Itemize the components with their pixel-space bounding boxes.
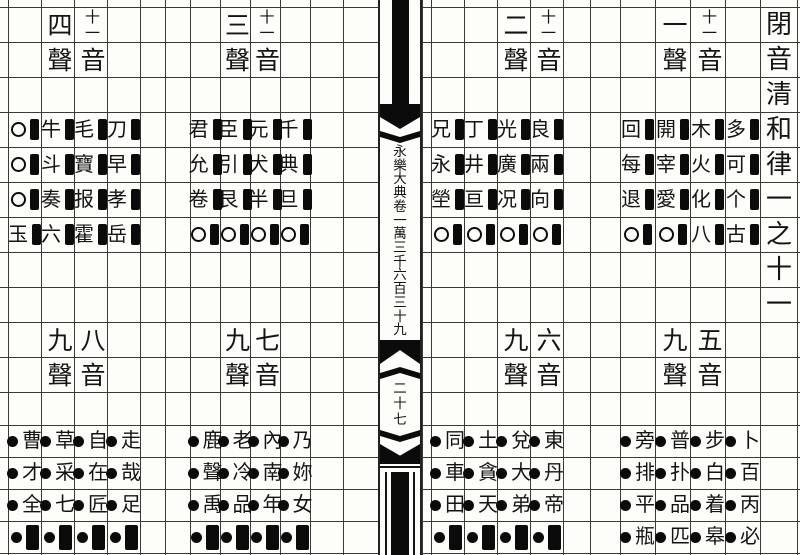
tone-bar-icon — [303, 154, 312, 175]
tone-bar-icon — [98, 154, 107, 175]
cell-character: 排 — [635, 463, 655, 483]
tone-bar-icon — [678, 224, 687, 245]
category-label: 五 — [690, 322, 725, 357]
filled-dot-icon — [725, 436, 736, 447]
cell-character: 才 — [22, 463, 42, 483]
tone-bar-icon — [680, 119, 689, 140]
cell-character: 開 — [656, 120, 676, 140]
filled-dot-icon — [463, 500, 474, 511]
cell-character: 六 — [41, 225, 61, 245]
tone-bar-icon — [131, 154, 140, 175]
tone-label: 三 — [220, 7, 250, 42]
grid-cell: 土 — [464, 425, 497, 457]
grid-cell: 丁 — [464, 112, 497, 147]
spine-volume-character: 永 — [393, 145, 407, 159]
cell-character: 步 — [705, 431, 725, 451]
grid-cell: 犬 — [250, 147, 280, 182]
tone-bar-icon — [715, 119, 724, 140]
grid-cell: 回 — [620, 112, 655, 147]
grid-vline — [422, 0, 423, 555]
grid-cell — [8, 112, 41, 147]
grid-vline — [590, 0, 591, 555]
filled-dot-icon — [40, 468, 51, 479]
grid-cell — [8, 147, 41, 182]
tone-label: 聲 — [655, 357, 690, 392]
filled-dot-icon — [248, 500, 259, 511]
tone-bar-icon — [270, 224, 279, 245]
cell-character: 永 — [431, 155, 451, 175]
empty-circle-icon — [434, 227, 449, 242]
cell-character: 品 — [670, 495, 690, 515]
tone-bar-icon — [455, 154, 464, 175]
tone-bar-icon — [98, 224, 107, 245]
cell-character: 曹 — [22, 431, 42, 451]
grid-cell: 普 — [655, 425, 690, 457]
empty-circle-icon — [281, 227, 296, 242]
grid-cell — [190, 521, 220, 553]
cell-character: 早 — [107, 155, 127, 175]
grid-cell: 同 — [431, 425, 464, 457]
cell-character: 千 — [279, 120, 299, 140]
cell-character: 臣 — [219, 120, 239, 140]
grid-cell: 南 — [250, 457, 280, 489]
grid-cell: 元 — [250, 112, 280, 147]
cell-character: 引 — [219, 155, 239, 175]
filled-dot-icon — [620, 436, 631, 447]
empty-circle-icon — [624, 227, 639, 242]
spine-volume-character: 千 — [393, 255, 407, 269]
filled-dot-icon — [106, 436, 117, 447]
tone-bar-icon — [266, 525, 279, 550]
grid-cell: 良 — [530, 112, 563, 147]
cell-character: 妳 — [293, 463, 313, 483]
grid-cell: 妳 — [280, 457, 310, 489]
filled-dot-icon — [690, 500, 701, 511]
title-character: 清 — [760, 77, 798, 112]
tone-label: 聲 — [41, 42, 74, 77]
empty-circle-icon — [533, 227, 548, 242]
cell-character: 帝 — [544, 495, 564, 515]
tone-bar-icon — [750, 119, 759, 140]
filled-dot-icon — [7, 500, 18, 511]
chevron-down-icon — [380, 131, 420, 143]
tone-bar-icon — [521, 154, 530, 175]
cell-character: 普 — [670, 431, 690, 451]
cell-character: 弟 — [511, 495, 531, 515]
tone-bar-icon — [300, 224, 309, 245]
cell-character: 丙 — [740, 495, 760, 515]
grid-cell: 塋 — [431, 182, 464, 217]
grid-cell: 開 — [655, 112, 690, 147]
grid-cell: 早 — [107, 147, 140, 182]
filled-dot-icon — [7, 436, 18, 447]
empty-circle-icon — [500, 227, 515, 242]
filled-dot-icon — [496, 436, 507, 447]
spine-volume-character: 百 — [393, 282, 407, 296]
filled-dot-icon — [7, 468, 18, 479]
cell-character: 宰 — [656, 155, 676, 175]
tone-bar-icon — [680, 154, 689, 175]
category-label: 音 — [530, 42, 563, 77]
cell-character: 向 — [530, 190, 550, 210]
spine-column: 永樂大典卷一萬三千六百三十九 二十七 — [378, 0, 422, 555]
filled-dot-icon — [655, 532, 666, 543]
filled-dot-icon — [248, 436, 259, 447]
grid-cell: 兌 — [497, 425, 530, 457]
tone-label: 聲 — [41, 357, 74, 392]
grid-cell: 東 — [530, 425, 563, 457]
tone-bar-icon — [236, 525, 249, 550]
cell-character: 采 — [55, 463, 75, 483]
filled-dot-icon — [655, 468, 666, 479]
cell-character: 报 — [74, 190, 94, 210]
category-label: 音 — [530, 357, 563, 392]
filled-dot-icon — [463, 468, 474, 479]
filled-dot-icon — [725, 468, 736, 479]
cell-character: 典 — [279, 155, 299, 175]
grid-cell: 千 — [280, 112, 310, 147]
manuscript-page: 永樂大典卷一萬三千六百三十九 二十七 閉音清和律一之十一一聲十一音回開木多每宰火… — [0, 0, 800, 555]
filled-dot-icon — [73, 468, 84, 479]
filled-dot-icon — [278, 468, 289, 479]
fishtail-bottom-icon — [380, 444, 420, 464]
tone-bar-icon — [92, 525, 105, 550]
filled-dot-icon — [690, 436, 701, 447]
cell-character: 井 — [464, 155, 484, 175]
filled-dot-icon — [40, 436, 51, 447]
grid-cell: 平 — [620, 489, 655, 521]
category-label: 音 — [250, 357, 280, 392]
tone-bar-icon — [303, 119, 312, 140]
cell-character: 愛 — [656, 190, 676, 210]
tone-bar-icon — [554, 189, 563, 210]
cell-character: 匠 — [88, 495, 108, 515]
grid-cell — [280, 217, 310, 252]
tone-label: 九 — [41, 322, 74, 357]
filled-dot-icon — [73, 436, 84, 447]
filled-dot-icon — [655, 436, 666, 447]
grid-cell: 旁 — [620, 425, 655, 457]
grid-cell — [464, 217, 497, 252]
grid-cell — [8, 521, 41, 553]
grid-cell: 霍 — [74, 217, 107, 252]
tone-bar-icon — [554, 119, 563, 140]
cell-character: 丹 — [544, 463, 564, 483]
tone-bar-icon — [488, 154, 497, 175]
grid-cell: 內 — [250, 425, 280, 457]
cell-character: 扑 — [670, 463, 690, 483]
category-label: 音 — [250, 42, 280, 77]
cell-character: 化 — [691, 190, 711, 210]
tone-bar-icon — [488, 119, 497, 140]
grid-cell: 年 — [250, 489, 280, 521]
cell-character: 古 — [726, 225, 746, 245]
spine-rule-left — [385, 472, 387, 555]
filled-dot-icon — [278, 436, 289, 447]
grid-cell: 六 — [41, 217, 74, 252]
grid-cell: 采 — [41, 457, 74, 489]
grid-cell: 車 — [431, 457, 464, 489]
title-character: 十 — [760, 252, 798, 287]
tone-bar-icon — [210, 224, 219, 245]
grid-cell: 引 — [220, 147, 250, 182]
tone-bar-icon — [645, 189, 654, 210]
filled-dot-icon — [529, 468, 540, 479]
grid-cell: 八 — [690, 217, 725, 252]
cell-character: 回 — [621, 120, 641, 140]
grid-cell — [431, 521, 464, 553]
category-label: 六 — [530, 322, 563, 357]
grid-cell: 光 — [497, 112, 530, 147]
cell-character: 退 — [621, 190, 641, 210]
grid-cell: 弟 — [497, 489, 530, 521]
grid-cell: 全 — [8, 489, 41, 521]
grid-cell: 女 — [280, 489, 310, 521]
tone-bar-icon — [715, 154, 724, 175]
grid-cell: 白 — [690, 457, 725, 489]
filled-dot-icon — [430, 500, 441, 511]
cell-character: 兌 — [511, 431, 531, 451]
filled-dot-icon — [281, 532, 292, 543]
filled-dot-icon — [529, 500, 540, 511]
cell-character: 兩 — [530, 155, 550, 175]
spine-page-number-character: 十 — [393, 397, 407, 411]
cell-character: 必 — [740, 527, 760, 547]
grid-cell: 排 — [620, 457, 655, 489]
spine-page-number: 二十七 — [380, 382, 420, 426]
tone-bar-icon — [296, 525, 309, 550]
cell-character: 七 — [55, 495, 75, 515]
grid-cell: 乃 — [280, 425, 310, 457]
tone-bar-icon — [645, 154, 654, 175]
cell-character: 足 — [121, 495, 141, 515]
grid-cell: 自 — [74, 425, 107, 457]
grid-cell: 孝 — [107, 182, 140, 217]
grid-cell: 个 — [725, 182, 760, 217]
cell-character: 犬 — [249, 155, 269, 175]
cell-character: 兄 — [431, 120, 451, 140]
cell-character: 同 — [445, 431, 465, 451]
grid-cell: 岳 — [107, 217, 140, 252]
tone-bar-icon — [240, 224, 249, 245]
grid-cell: 愛 — [655, 182, 690, 217]
empty-circle-icon — [251, 227, 266, 242]
grid-cell: 臣 — [220, 112, 250, 147]
grid-cell: 井 — [464, 147, 497, 182]
cell-character: 全 — [22, 495, 42, 515]
spine-volume-character: 萬 — [393, 227, 407, 241]
cell-character: 孝 — [107, 190, 127, 210]
tone-bar-icon — [449, 525, 462, 550]
tone-bar-icon — [515, 525, 528, 550]
filled-dot-icon — [620, 500, 631, 511]
filled-dot-icon — [500, 532, 511, 543]
spine-top-bar — [392, 0, 409, 104]
grid-cell: 丙 — [725, 489, 760, 521]
title-character: 和 — [760, 112, 798, 147]
cell-character: 乃 — [293, 431, 313, 451]
spine-volume-character: 一 — [393, 214, 407, 228]
tone-label: 九 — [655, 322, 690, 357]
grid-cell: 聲 — [190, 457, 220, 489]
tone-bar-icon — [488, 189, 497, 210]
tone-label: 聲 — [655, 42, 690, 77]
grid-cell: 半 — [250, 182, 280, 217]
cell-character: 旦 — [279, 190, 299, 210]
filled-dot-icon — [11, 532, 22, 543]
category-label: 十一 — [530, 7, 563, 42]
spine-volume-character: 十 — [393, 310, 407, 324]
grid-cell: 毛 — [74, 112, 107, 147]
grid-cell — [220, 521, 250, 553]
tone-label: 一 — [655, 7, 690, 42]
filled-dot-icon — [218, 468, 229, 479]
grid-cell — [655, 217, 690, 252]
filled-dot-icon — [690, 532, 701, 543]
grid-cell: 七 — [41, 489, 74, 521]
cell-character: 土 — [478, 431, 498, 451]
filled-dot-icon — [278, 500, 289, 511]
cell-character: 奏 — [41, 190, 61, 210]
filled-dot-icon — [218, 436, 229, 447]
cell-character: 个 — [726, 190, 746, 210]
grid-cell: 瓶 — [620, 521, 655, 553]
cell-character: 草 — [55, 431, 75, 451]
grid-cell: 退 — [620, 182, 655, 217]
grid-cell — [497, 217, 530, 252]
grid-cell: 在 — [74, 457, 107, 489]
grid-cell: 牛 — [41, 112, 74, 147]
tone-label: 聲 — [497, 42, 530, 77]
tone-bar-icon — [521, 189, 530, 210]
filled-dot-icon — [463, 436, 474, 447]
filled-dot-icon — [430, 468, 441, 479]
filled-dot-icon — [106, 468, 117, 479]
grid-cell — [620, 217, 655, 252]
spine-volume-character: 卷 — [393, 200, 407, 214]
grid-cell — [190, 217, 220, 252]
grid-cell: 大 — [497, 457, 530, 489]
tone-bar-icon — [30, 154, 39, 175]
filled-dot-icon — [188, 436, 199, 447]
cell-character: 寶 — [74, 155, 94, 175]
empty-circle-icon — [11, 157, 26, 172]
cell-character: 着 — [705, 495, 725, 515]
filled-dot-icon — [620, 532, 631, 543]
grid-cell: 卷 — [190, 182, 220, 217]
filled-dot-icon — [106, 500, 117, 511]
filled-dot-icon — [620, 468, 631, 479]
tone-bar-icon — [486, 224, 495, 245]
cell-character: 廣 — [497, 155, 517, 175]
grid-cell: 品 — [220, 489, 250, 521]
tone-bar-icon — [750, 189, 759, 210]
tone-bar-icon — [98, 119, 107, 140]
tone-bar-icon — [26, 525, 39, 550]
grid-cell: 貪 — [464, 457, 497, 489]
grid-cell: 永 — [431, 147, 464, 182]
filled-dot-icon — [110, 532, 121, 543]
title-character: 律 — [760, 147, 798, 182]
tone-bar-icon — [131, 189, 140, 210]
spine-page-number-character: 七 — [393, 413, 407, 427]
grid-cell: 田 — [431, 489, 464, 521]
tone-bar-icon — [453, 224, 462, 245]
grid-cell — [250, 521, 280, 553]
tone-bar-icon — [519, 224, 528, 245]
cell-character: 貪 — [478, 463, 498, 483]
grid-cell: 典 — [280, 147, 310, 182]
cell-character: 可 — [726, 155, 746, 175]
grid-cell: 天 — [464, 489, 497, 521]
chevron-down-icon — [380, 430, 420, 442]
fishtail-down-icon — [380, 104, 420, 129]
grid-cell: 化 — [690, 182, 725, 217]
cell-character: 卷 — [189, 190, 209, 210]
empty-circle-icon — [221, 227, 236, 242]
spine-rule-right — [413, 472, 415, 555]
tone-bar-icon — [30, 119, 39, 140]
grid-cell: 刀 — [107, 112, 140, 147]
filled-dot-icon — [221, 532, 232, 543]
cell-character: 元 — [249, 120, 269, 140]
grid-cell: 每 — [620, 147, 655, 182]
tone-bar-icon — [482, 525, 495, 550]
title-character: 閉 — [760, 7, 798, 42]
empty-circle-icon — [467, 227, 482, 242]
tone-bar-icon — [65, 119, 74, 140]
cell-character: 女 — [293, 495, 313, 515]
filled-dot-icon — [467, 532, 478, 543]
category-label: 音 — [690, 42, 725, 77]
grid-cell: 禹 — [190, 489, 220, 521]
grid-cell — [8, 182, 41, 217]
category-label: 十一 — [74, 7, 107, 42]
tone-label: 聲 — [220, 357, 250, 392]
grid-vline — [165, 0, 166, 555]
tone-bar-icon — [715, 224, 724, 245]
fishtail-up-icon — [380, 340, 420, 364]
grid-cell: 报 — [74, 182, 107, 217]
filled-dot-icon — [496, 468, 507, 479]
filled-dot-icon — [690, 468, 701, 479]
tone-bar-icon — [303, 189, 312, 210]
spine-volume-character: 三 — [393, 241, 407, 255]
cell-character: 君 — [189, 120, 209, 140]
cell-character: 牛 — [41, 120, 61, 140]
filled-dot-icon — [44, 532, 55, 543]
tone-bar-icon — [521, 119, 530, 140]
cell-character: 每 — [621, 155, 641, 175]
tone-bar-icon — [65, 224, 74, 245]
category-label: 十一 — [250, 7, 280, 42]
tone-label: 九 — [220, 322, 250, 357]
cell-character: 天 — [478, 495, 498, 515]
grid-cell: 着 — [690, 489, 725, 521]
cell-character: 允 — [189, 155, 209, 175]
cell-character: 刀 — [107, 120, 127, 140]
spine-volume-character: 大 — [393, 172, 407, 186]
empty-circle-icon — [659, 227, 674, 242]
cell-character: 走 — [121, 431, 141, 451]
cell-character: 在 — [88, 463, 108, 483]
cell-character: 玉 — [8, 225, 28, 245]
grid-cell: 走 — [107, 425, 140, 457]
tone-bar-icon — [715, 189, 724, 210]
grid-cell: 亘 — [464, 182, 497, 217]
filled-dot-icon — [40, 500, 51, 511]
spine-volume-character: 樂 — [393, 159, 407, 173]
